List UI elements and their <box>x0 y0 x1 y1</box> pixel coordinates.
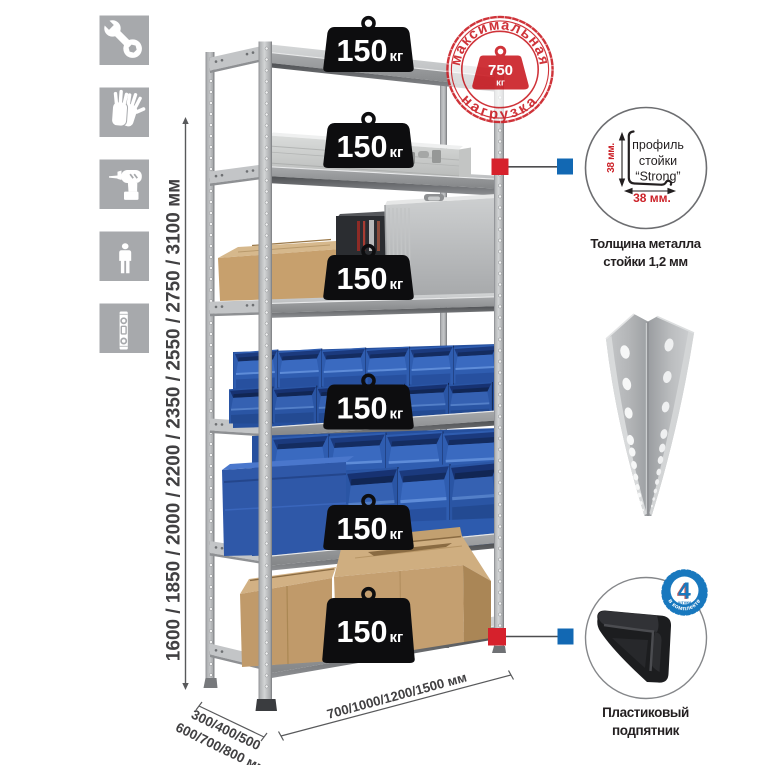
svg-text:кг: кг <box>390 526 404 543</box>
svg-text:стойки 1,2 мм: стойки 1,2 мм <box>603 254 687 269</box>
svg-text:подпятник: подпятник <box>612 723 680 738</box>
svg-text:38 мм.: 38 мм. <box>606 143 617 173</box>
svg-text:кг: кг <box>390 144 404 161</box>
svg-text:150: 150 <box>337 34 388 68</box>
svg-text:150: 150 <box>337 262 388 296</box>
svg-text:стойки: стойки <box>639 154 677 168</box>
svg-text:“Strong”: “Strong” <box>635 170 680 184</box>
svg-text:1600 / 1850 / 2000 / 2200 / 23: 1600 / 1850 / 2000 / 2200 / 2350 / 2550 … <box>164 179 185 661</box>
svg-text:кг: кг <box>390 276 404 293</box>
svg-text:профиль: профиль <box>632 138 684 152</box>
svg-text:150: 150 <box>337 512 388 546</box>
svg-text:Толщина металла: Толщина металла <box>590 236 701 251</box>
svg-text:38 мм.: 38 мм. <box>633 191 671 205</box>
svg-text:150: 150 <box>337 130 388 164</box>
svg-text:кг: кг <box>390 629 404 646</box>
svg-text:кг: кг <box>496 78 505 89</box>
svg-text:кг: кг <box>390 48 404 65</box>
svg-text:150: 150 <box>337 392 388 426</box>
svg-text:750: 750 <box>488 62 513 79</box>
svg-text:штуки: штуки <box>678 600 692 605</box>
svg-text:150: 150 <box>337 615 388 649</box>
svg-text:700/1000/1200/1500 мм: 700/1000/1200/1500 мм <box>325 670 468 722</box>
svg-text:кг: кг <box>390 406 404 423</box>
svg-text:Пластиковый: Пластиковый <box>602 705 689 720</box>
